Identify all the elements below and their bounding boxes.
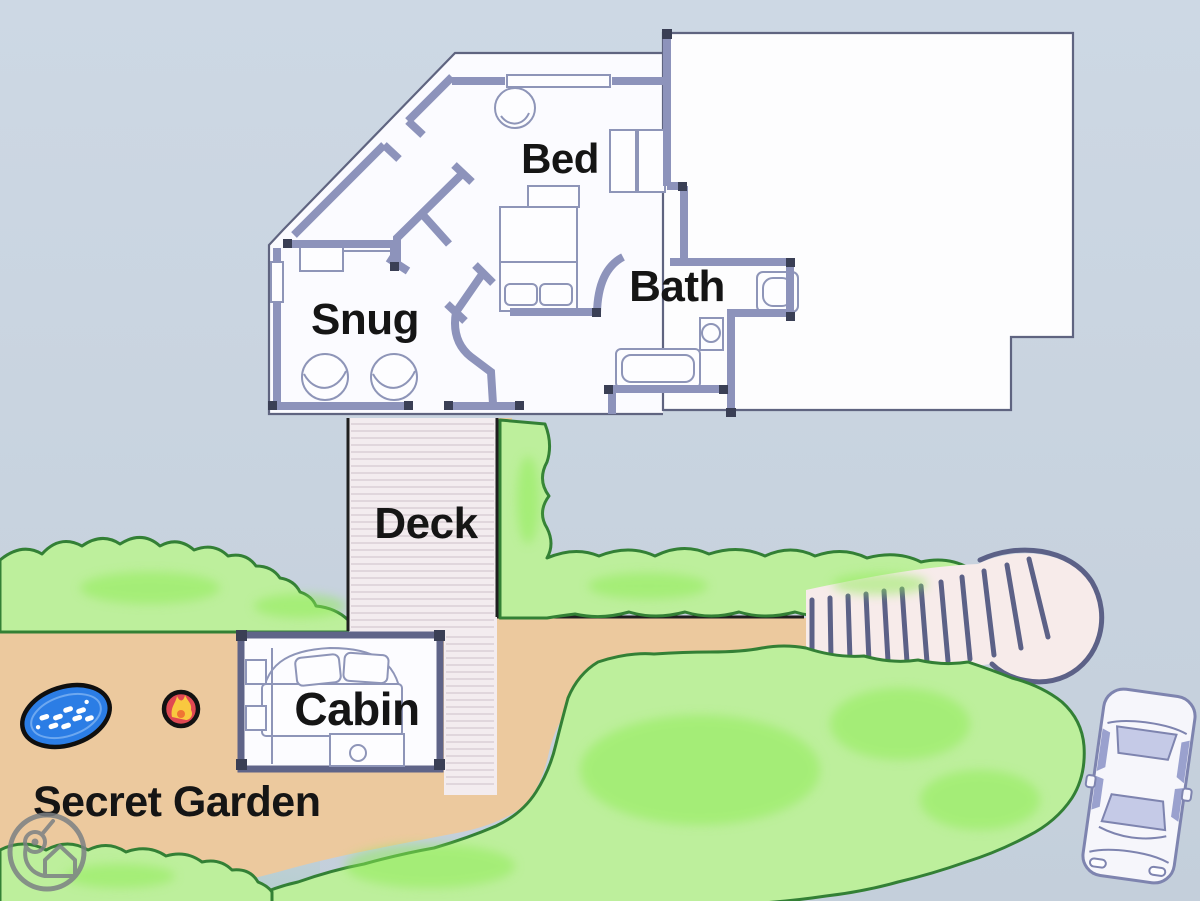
bedroom-chair [495, 88, 535, 128]
site-plan-illustration: Bed Snug Bath Deck Cabin Secret Garden [0, 0, 1200, 901]
label-bed: Bed [521, 135, 599, 182]
label-cabin: Cabin [294, 683, 419, 735]
label-bath: Bath [629, 262, 725, 311]
house-wing-footprint [663, 33, 1073, 410]
label-snug: Snug [311, 295, 419, 344]
fire-pit [164, 692, 198, 726]
label-deck: Deck [374, 499, 478, 548]
label-secret-garden: Secret Garden [33, 778, 320, 826]
